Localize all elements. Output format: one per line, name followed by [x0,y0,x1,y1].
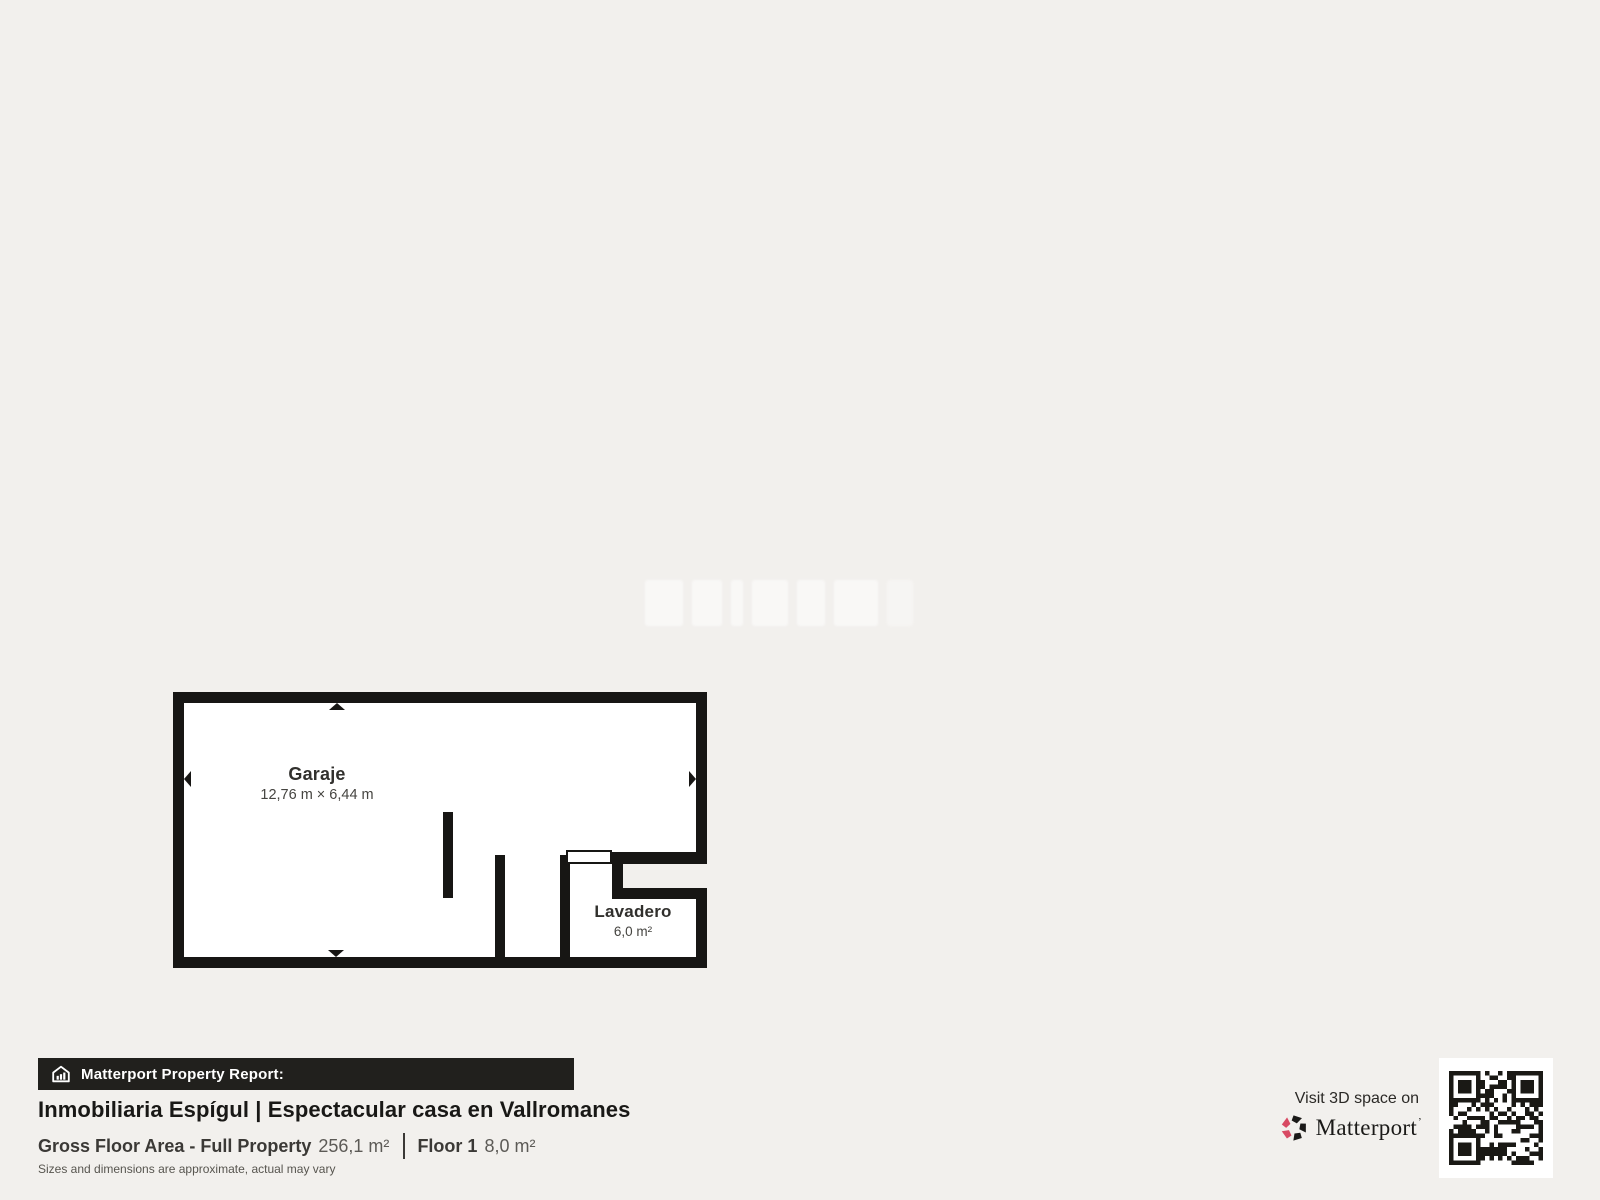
watermark-glyph [834,580,878,626]
property-title: Inmobiliaria Espígul | Espectacular casa… [38,1097,630,1123]
gross-floor-area-label: Gross Floor Area - Full Property [38,1136,311,1157]
report-header-bar: Matterport Property Report: [38,1058,574,1090]
trademark-tick: ’ [1418,1116,1422,1128]
interior-wall-freestanding [443,812,453,898]
lavadero-top-wall [612,852,696,864]
watermark-glyph [731,580,743,626]
floorplan-canvas: Garaje 12,76 m × 6,44 m Lavadero 6,0 m² [173,692,707,968]
dimension-arrow-right-icon [689,771,696,787]
metrics-divider [403,1133,405,1159]
watermark-glyph [887,580,913,626]
exterior-notch [623,864,707,888]
room-area: 6,0 m² [570,924,696,939]
garage-room-label: Garaje 12,76 m × 6,44 m [217,764,417,803]
gross-floor-area-value: 256,1 m² [318,1136,389,1157]
watermark-glyph [752,580,788,626]
watermark-glyph [692,580,722,626]
lavadero-left-wall [560,855,570,957]
qr-code-pattern [1449,1071,1543,1165]
room-name: Garaje [217,764,417,785]
interior-wall-garage [495,855,505,957]
lavadero-room-label: Lavadero 6,0 m² [570,902,696,939]
matterport-brand-row: Matterport’ [1279,1113,1422,1143]
house-chart-icon [50,1063,72,1085]
property-report-page: Garaje 12,76 m × 6,44 m Lavadero 6,0 m² … [0,0,1600,1200]
floor-area-value: 8,0 m² [484,1136,535,1157]
floor-label: Floor 1 [417,1136,477,1157]
visit-3d-space-text: Visit 3D space on [1295,1090,1419,1108]
matterport-pinwheel-icon [1279,1113,1309,1143]
dimension-arrow-up-icon [329,703,345,710]
faint-watermark [645,580,923,626]
room-name: Lavadero [570,902,696,922]
door-opening [566,850,612,864]
watermark-glyph [645,580,683,626]
qr-code [1439,1058,1553,1178]
matterport-wordmark: Matterport’ [1316,1115,1422,1141]
area-metrics-row: Gross Floor Area - Full Property 256,1 m… [38,1133,535,1159]
room-dimensions: 12,76 m × 6,44 m [217,787,417,803]
notch-bottom-wall [612,888,696,899]
disclaimer-text: Sizes and dimensions are approximate, ac… [38,1162,335,1176]
dimension-arrow-down-icon [328,950,344,957]
report-bar-label: Matterport Property Report: [81,1066,284,1083]
watermark-glyph [797,580,825,626]
dimension-arrow-left-icon [184,771,191,787]
